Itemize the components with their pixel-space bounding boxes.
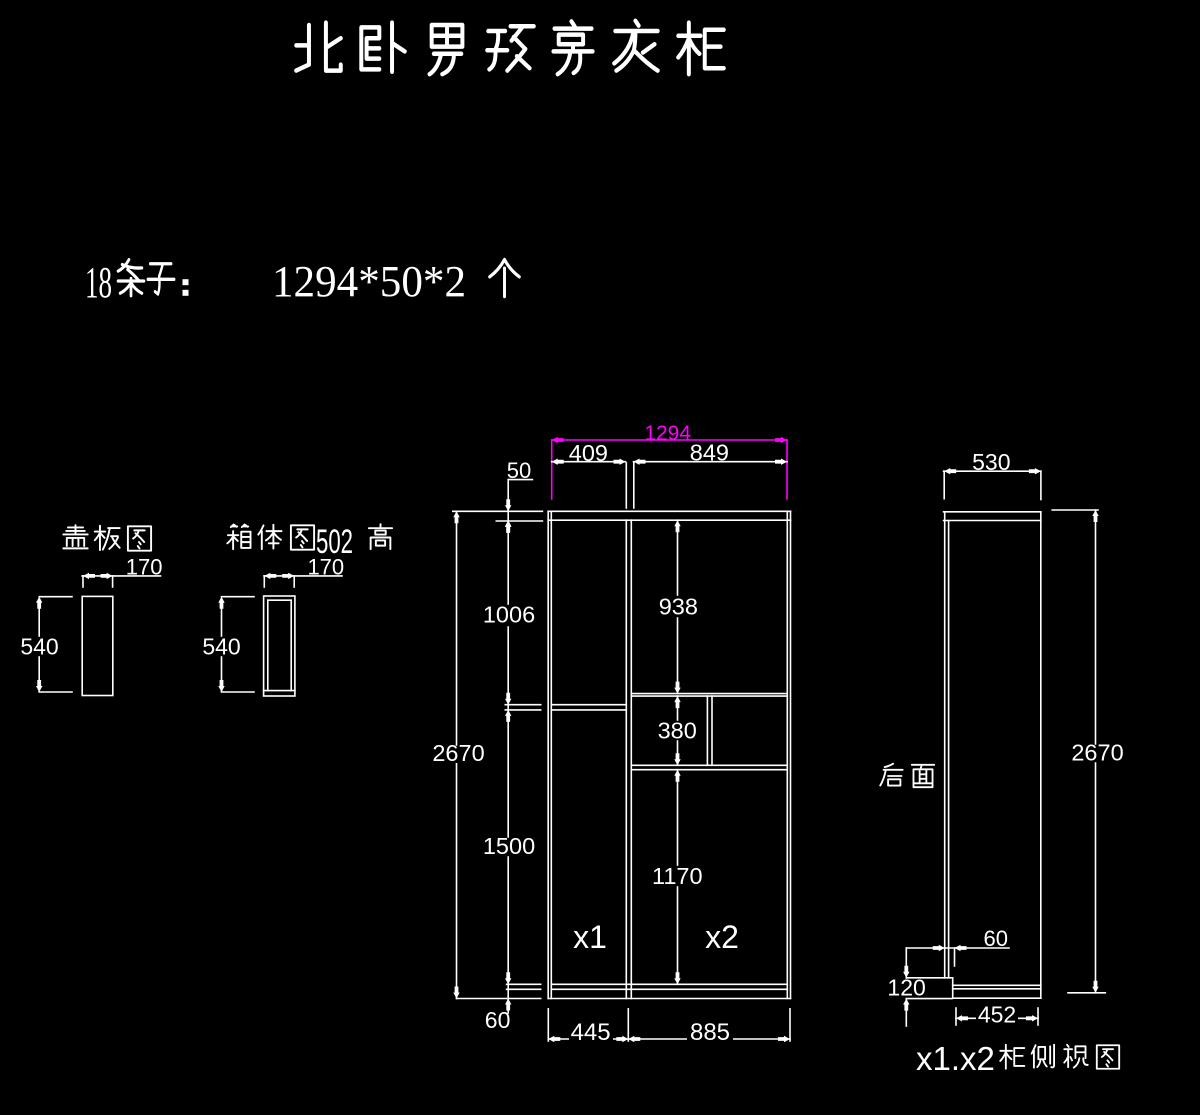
svg-text:445: 445 xyxy=(571,1019,611,1046)
svg-text:170: 170 xyxy=(126,555,163,580)
svg-text:120: 120 xyxy=(887,975,925,1001)
svg-text:1006: 1006 xyxy=(483,602,535,628)
svg-text:1170: 1170 xyxy=(652,863,703,889)
svg-text:2670: 2670 xyxy=(432,740,484,766)
svg-text:x1: x1 xyxy=(573,919,607,955)
svg-text:x1.x2: x1.x2 xyxy=(916,1040,995,1077)
svg-text:380: 380 xyxy=(658,718,697,744)
svg-text:938: 938 xyxy=(659,594,698,620)
svg-text:60: 60 xyxy=(983,926,1007,951)
svg-text:885: 885 xyxy=(690,1019,730,1046)
svg-text:x2: x2 xyxy=(705,919,739,955)
svg-text:540: 540 xyxy=(20,634,58,660)
svg-text:409: 409 xyxy=(569,440,608,466)
svg-text:452: 452 xyxy=(978,1002,1016,1028)
svg-text:1500: 1500 xyxy=(483,833,535,859)
svg-text:50: 50 xyxy=(507,458,531,483)
svg-text:502: 502 xyxy=(316,523,353,561)
svg-text:1294: 1294 xyxy=(644,422,691,445)
svg-text:849: 849 xyxy=(690,440,729,466)
svg-text:60: 60 xyxy=(485,1007,511,1033)
svg-text:1294*50*2: 1294*50*2 xyxy=(272,257,466,306)
svg-text:18: 18 xyxy=(85,258,112,307)
svg-text:2670: 2670 xyxy=(1071,740,1123,766)
svg-text:530: 530 xyxy=(972,449,1010,475)
svg-text:540: 540 xyxy=(202,634,240,660)
